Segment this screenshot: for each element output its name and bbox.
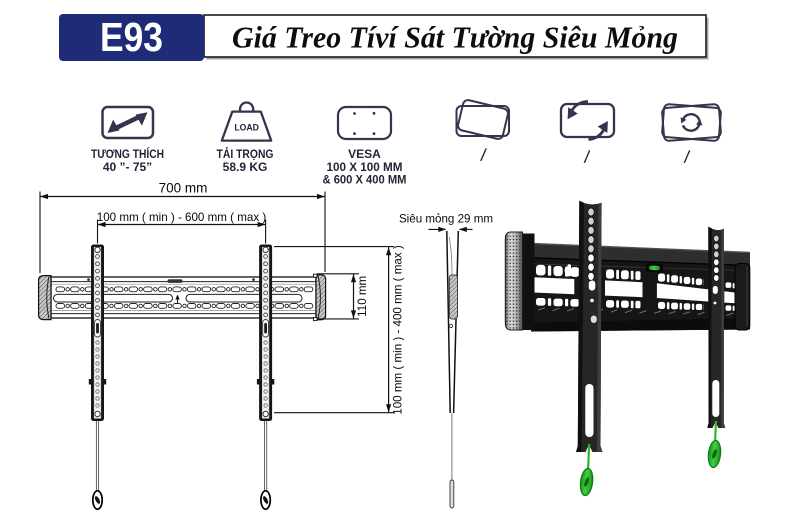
svg-text:LOAD: LOAD [234, 123, 259, 133]
svg-text:100 mm ( min ) - 600 mm ( max: 100 mm ( min ) - 600 mm ( max ) [97, 211, 267, 224]
svg-text:58.9 KG: 58.9 KG [223, 160, 268, 174]
svg-text:E93: E93 [100, 14, 163, 60]
svg-text:110 mm: 110 mm [356, 276, 369, 317]
svg-text:700 mm: 700 mm [159, 181, 208, 196]
svg-text:100 mm ( min ) - 400 mm ( max: 100 mm ( min ) - 400 mm ( max ) [392, 245, 405, 415]
svg-text:Giá Treo Tíví Sát Tường Siêu M: Giá Treo Tíví Sát Tường Siêu Mỏng [232, 21, 678, 55]
svg-text:40 ”- 75”: 40 ”- 75” [103, 160, 152, 174]
svg-text:& 600 X 400 MM: & 600 X 400 MM [323, 172, 407, 186]
svg-text:Siêu mỏng 29 mm: Siêu mỏng 29 mm [399, 213, 493, 226]
